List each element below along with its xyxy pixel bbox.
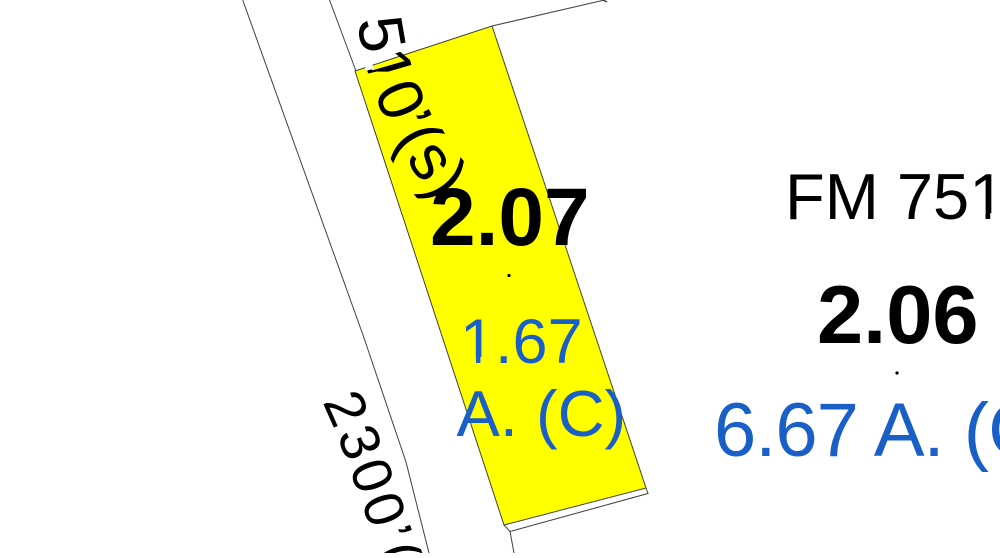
svg-text:1.67: 1.67 — [460, 307, 583, 377]
svg-text:2.06: 2.06 — [817, 268, 979, 361]
svg-text:6.67 A. (C): 6.67 A. (C) — [714, 388, 1000, 473]
svg-text:2.07: 2.07 — [430, 172, 590, 263]
svg-text:FM 751: FM 751 — [785, 160, 1000, 233]
svg-text:A. (C): A. (C) — [457, 377, 627, 450]
